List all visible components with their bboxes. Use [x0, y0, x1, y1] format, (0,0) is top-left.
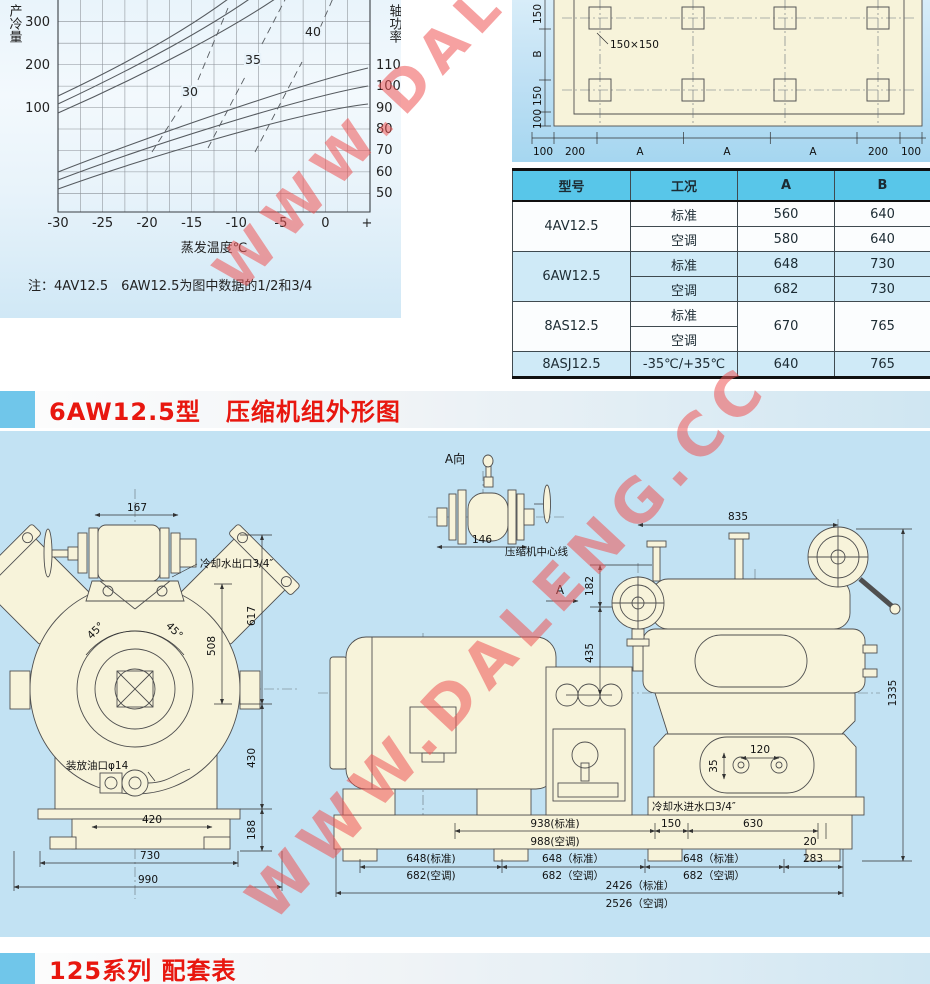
- dim-20-label: 20: [803, 836, 816, 848]
- hole-size-label: 150×150: [610, 39, 659, 51]
- cell-b: 640: [835, 227, 930, 252]
- dim-188-label: 188: [246, 820, 258, 840]
- table-row: 8AS12.5 标准 670 765: [513, 302, 930, 327]
- foundation-bottom-dims: 100 200 A A A 200 100: [532, 132, 926, 158]
- pump-bracket: [86, 581, 184, 601]
- section-marker-square: [0, 391, 35, 428]
- left-axis-title: 产冷量: [7, 4, 23, 43]
- cell-condition: 标准: [631, 302, 738, 327]
- dim-420-label: 420: [142, 814, 162, 826]
- section-title: 6AW12.5型 压缩机组外形图: [49, 392, 401, 427]
- dim-146-label: 146: [472, 534, 492, 546]
- foundation-left-dims: 150 B 150 100: [532, 0, 551, 129]
- cell-condition: 标准: [631, 201, 738, 227]
- detail-view-a: A向 146 压缩机中心线 A: [428, 451, 578, 601]
- cell-condition: 标准: [631, 252, 738, 277]
- svg-text:200: 200: [565, 146, 585, 158]
- header-model: 型号: [513, 170, 631, 202]
- right-tick-80: 80: [376, 122, 393, 137]
- x-tick-5: -5: [274, 216, 287, 231]
- x-tick-7: +: [362, 216, 373, 231]
- water-outlet-label: 冷却水出口3/4″: [200, 557, 273, 570]
- dim-990-label: 990: [138, 874, 158, 886]
- table-row: 6AW12.5 标准 648 730: [513, 252, 930, 277]
- water-inlet-label: 冷却水进水口3/4″: [652, 800, 736, 813]
- cell-model: 4AV12.5: [513, 201, 631, 252]
- right-tick-90: 90: [376, 101, 393, 116]
- curve-label-40: 40: [305, 24, 321, 39]
- dim-938-label: 938(标准): [530, 818, 579, 830]
- cell-model: 6AW12.5: [513, 252, 631, 302]
- motor: [346, 637, 556, 789]
- view-a-title: A向: [445, 451, 465, 466]
- right-tick-110: 110: [376, 58, 401, 73]
- svg-text:100: 100: [532, 109, 544, 129]
- cell-model: 8ASJ12.5: [513, 352, 631, 378]
- chart-note: 注：4AV12.5 6AW12.5为图中数据的1/2和3/4: [28, 278, 312, 294]
- dim-648-2-label: 648（标准）: [542, 853, 604, 865]
- cell-b: 640: [835, 201, 930, 227]
- cell-b: 765: [835, 352, 930, 378]
- right-tick-50: 50: [376, 186, 393, 201]
- base-frame: [334, 815, 852, 849]
- cell-a: 580: [738, 227, 835, 252]
- dim-2526-label: 2526（空调）: [606, 897, 675, 910]
- dim-682-2-label: 682（空调）: [542, 869, 604, 882]
- svg-text:200: 200: [868, 146, 888, 158]
- right-tick-70: 70: [376, 143, 393, 158]
- dim-617-label: 617: [246, 606, 258, 626]
- cell-condition: -35℃/+35℃: [631, 352, 738, 378]
- header-condition: 工况: [631, 170, 738, 202]
- side-view: 835 182 435 1335 120 35 冷却水进水口3/4″: [318, 511, 912, 910]
- dim-835-label: 835: [728, 511, 748, 523]
- x-tick-3: -15: [181, 216, 202, 231]
- curve-label-30: 30: [182, 84, 198, 99]
- cell-condition: 空调: [631, 277, 738, 302]
- svg-text:150: 150: [532, 4, 544, 24]
- header-b: B: [835, 170, 930, 202]
- svg-text:B: B: [532, 50, 544, 57]
- table-row: 8ASJ12.5 -35℃/+35℃ 640 765: [513, 352, 930, 378]
- spec-table-panel: 型号 工况 A B 4AV12.5 标准 560 640 空调 580 640 …: [512, 168, 930, 379]
- curve-label-35: 35: [245, 52, 261, 67]
- dim-row-2: 648(标准) 648（标准） 648（标准） 283 682(空调) 682（…: [336, 849, 843, 897]
- cell-b: 730: [835, 277, 930, 302]
- svg-text:150: 150: [532, 86, 544, 106]
- x-tick-2: -20: [136, 216, 157, 231]
- foundation-plan-panel: 150×150 150 B 150 100 100 200 A A A 200 …: [512, 0, 930, 162]
- dim-2426-label: 2426（标准）: [606, 880, 675, 892]
- x-axis-title: 蒸发温度℃: [181, 240, 248, 256]
- pedestal-plate: [38, 809, 240, 819]
- table-header-row: 型号 工况 A B: [513, 170, 930, 202]
- x-tick-6: 0: [321, 216, 329, 231]
- spec-table: 型号 工况 A B 4AV12.5 标准 560 640 空调 580 640 …: [512, 168, 930, 379]
- catalog-page: 30 35 40 300 200 100 110 100 90 80 70 60…: [0, 0, 930, 984]
- cell-a: 682: [738, 277, 835, 302]
- section-title: 125系列 配套表: [49, 951, 236, 984]
- svg-text:A: A: [723, 146, 731, 158]
- dim-682-1-label: 682(空调): [406, 869, 455, 882]
- dim-120-label: 120: [750, 744, 770, 756]
- performance-chart-panel: 30 35 40 300 200 100 110 100 90 80 70 60…: [0, 0, 401, 318]
- cell-a: 560: [738, 201, 835, 227]
- dim-648-1-label: 648(标准): [406, 853, 455, 865]
- cell-condition: 空调: [631, 227, 738, 252]
- cell-b: 765: [835, 302, 930, 352]
- cell-model: 8AS12.5: [513, 302, 631, 352]
- dim-35-label: 35: [708, 759, 720, 772]
- dim-648-3-label: 648（标准）: [683, 853, 745, 865]
- section-marker-square: [0, 953, 35, 984]
- compressor-centerline-label: 压缩机中心线: [505, 545, 568, 558]
- dim-435-label: 435: [584, 643, 596, 663]
- svg-text:A: A: [636, 146, 644, 158]
- dim-508-label: 508: [206, 636, 218, 656]
- dim-988-label: 988(空调): [530, 835, 579, 848]
- oil-port-label: 装放油口φ14: [66, 759, 129, 772]
- dim-150-label: 150: [661, 818, 681, 830]
- left-tick-100: 100: [25, 101, 50, 116]
- dim-430-label: 430: [246, 748, 258, 768]
- x-tick-1: -25: [92, 216, 113, 231]
- view-arrow-label: A: [556, 583, 565, 597]
- outline-drawing: 45° 45° 167 冷却水出口3/4″ 617 508 430 188 装放…: [0, 431, 930, 937]
- chart-grid: [58, 0, 370, 212]
- left-tick-300: 300: [25, 15, 50, 30]
- performance-chart: 30 35 40 300 200 100 110 100 90 80 70 60…: [0, 0, 401, 318]
- svg-text:100: 100: [533, 146, 553, 158]
- outline-drawing-panel: 45° 45° 167 冷却水出口3/4″ 617 508 430 188 装放…: [0, 431, 930, 937]
- control-box: [546, 667, 632, 815]
- dim-730-label: 730: [140, 850, 160, 862]
- dim-167-label: 167: [127, 502, 147, 514]
- dim-283-label: 283: [803, 853, 823, 865]
- foundation-plan: 150×150 150 B 150 100 100 200 A A A 200 …: [512, 0, 930, 162]
- dim-630-label: 630: [743, 818, 763, 830]
- table-row: 4AV12.5 标准 560 640: [513, 201, 930, 227]
- compressor-body: [643, 579, 877, 815]
- left-tick-200: 200: [25, 58, 50, 73]
- svg-text:A: A: [809, 146, 817, 158]
- front-view: 45° 45° 167 冷却水出口3/4″ 617 508 430 188 装放…: [0, 489, 300, 899]
- section-header-matching: 125系列 配套表: [0, 953, 930, 984]
- x-tick-0: -30: [47, 216, 68, 231]
- cell-b: 730: [835, 252, 930, 277]
- dim-row-total: 2426（标准） 2526（空调）: [336, 880, 843, 910]
- header-a: A: [738, 170, 835, 202]
- dim-682-3-label: 682（空调）: [683, 869, 745, 882]
- right-tick-60: 60: [376, 165, 393, 180]
- right-axis-title: 轴功率: [387, 4, 402, 43]
- svg-text:100: 100: [901, 146, 921, 158]
- dim-182-label: 182: [584, 576, 596, 596]
- cell-a: 648: [738, 252, 835, 277]
- cell-condition: 空调: [631, 327, 738, 352]
- dim-1335-label: 1335: [887, 680, 899, 707]
- right-tick-100: 100: [376, 79, 401, 94]
- section-header-outline: 6AW12.5型 压缩机组外形图: [0, 391, 930, 428]
- cell-a: 670: [738, 302, 835, 352]
- x-tick-4: -10: [226, 216, 247, 231]
- cell-a: 640: [738, 352, 835, 378]
